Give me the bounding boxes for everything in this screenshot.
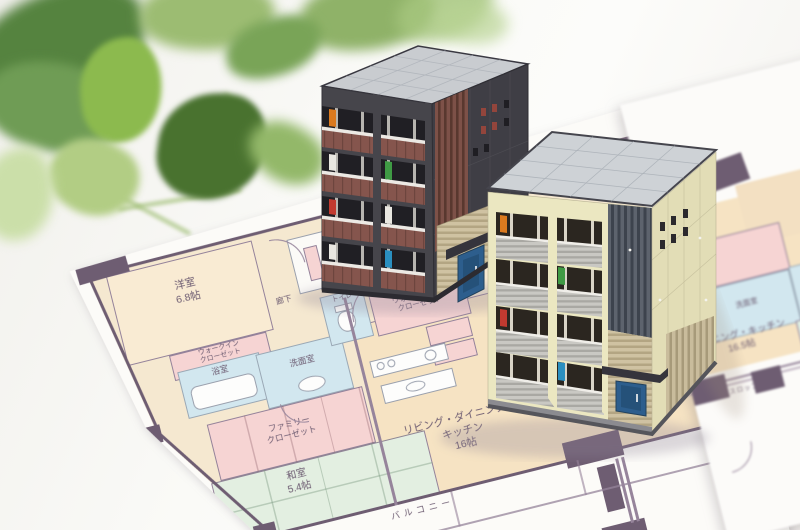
facade-mullion — [425, 103, 432, 301]
vent-dot-icon — [705, 299, 708, 302]
accent-panel — [329, 199, 336, 215]
side-window — [671, 216, 676, 225]
accent-panel — [385, 161, 392, 180]
side-louver-wall — [666, 316, 714, 420]
scene: リビング・ダイニング・ キッチン 16帖 洋室 6.8帖 ウォークイン クローゼ… — [0, 0, 800, 530]
door-handle-icon — [636, 394, 638, 402]
vent-dot-icon — [699, 237, 702, 240]
side-window — [660, 222, 665, 231]
building-shadow — [440, 418, 710, 458]
side-window — [671, 234, 676, 243]
side-window — [660, 240, 665, 249]
vent-dot-icon — [629, 249, 632, 252]
entrance-wall — [608, 330, 652, 432]
accent-panel — [500, 215, 507, 233]
side-window — [481, 108, 486, 116]
accent-panel — [558, 267, 565, 285]
accent-panel — [329, 109, 336, 127]
facade-mullion — [548, 216, 557, 411]
accent-panel — [385, 206, 392, 224]
accent-panel — [500, 309, 507, 327]
side-window — [481, 126, 486, 134]
side-window — [484, 144, 489, 152]
accent-panel — [558, 362, 565, 381]
accent-panel — [329, 244, 336, 260]
facade-mullion — [373, 94, 381, 295]
side-window — [504, 118, 509, 126]
building-models — [0, 0, 800, 530]
building-front — [488, 132, 716, 435]
side-window — [492, 104, 497, 112]
side-window — [473, 148, 478, 156]
vent-dot-icon — [659, 299, 662, 302]
side-window — [492, 122, 497, 130]
accent-panel — [385, 250, 392, 268]
side-window — [504, 100, 509, 108]
corner-louver — [608, 204, 652, 338]
side-window — [683, 227, 688, 236]
accent-panel — [329, 154, 336, 171]
side-window — [683, 209, 688, 218]
